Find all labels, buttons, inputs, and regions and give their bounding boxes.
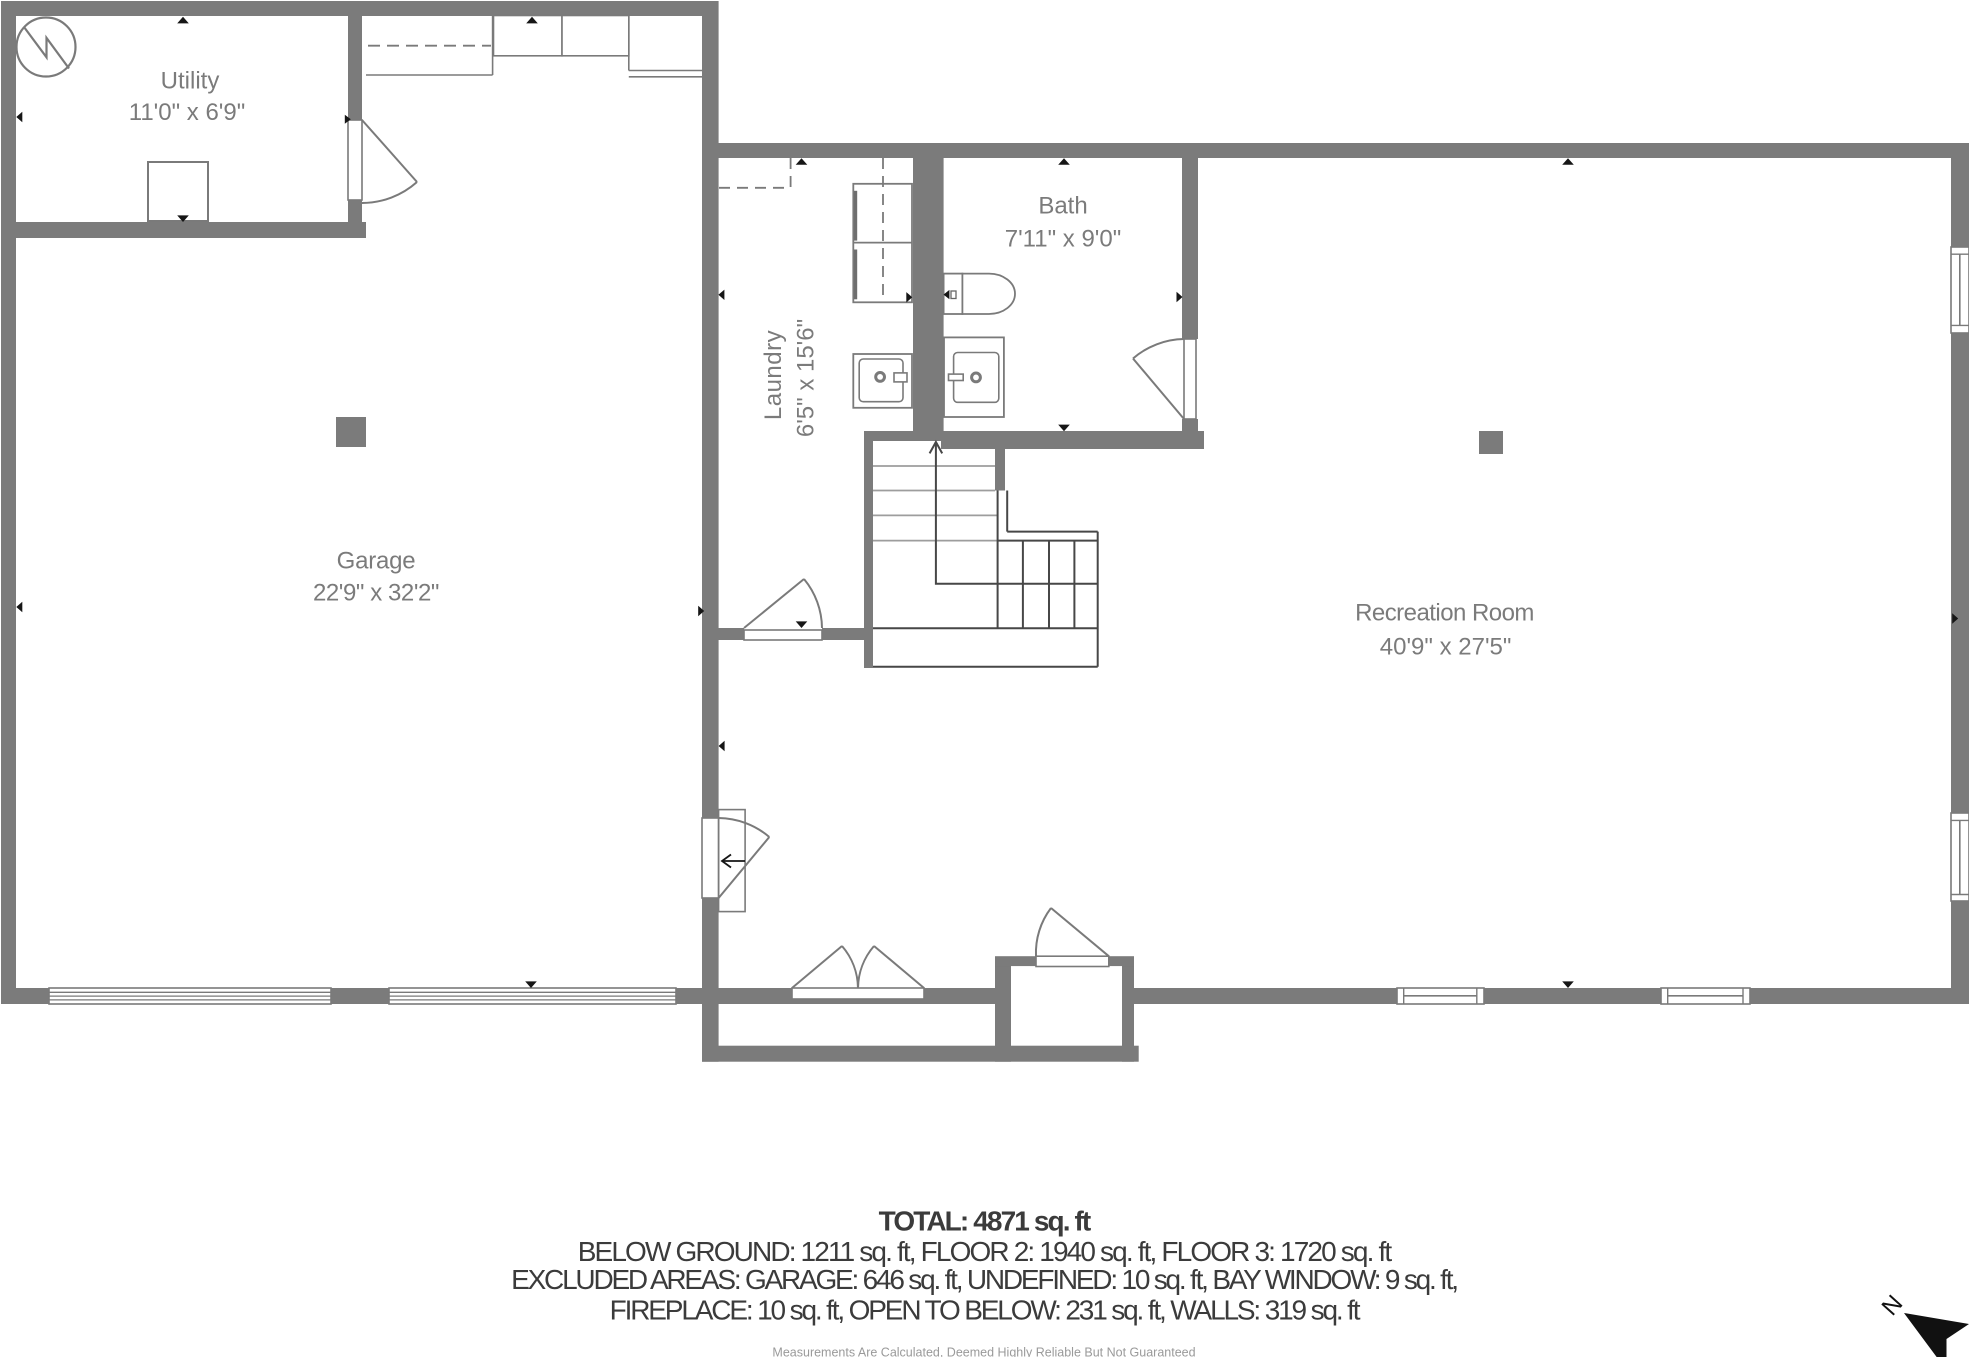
svg-text:Recreation Room: Recreation Room bbox=[1355, 599, 1534, 626]
svg-text:Garage: Garage bbox=[337, 548, 416, 575]
svg-text:Bath: Bath bbox=[1038, 193, 1087, 220]
svg-text:Utility: Utility bbox=[161, 68, 220, 95]
svg-text:40'9" x 27'5": 40'9" x 27'5" bbox=[1380, 634, 1512, 661]
svg-text:6'5" x 15'6": 6'5" x 15'6" bbox=[793, 319, 820, 437]
svg-text:7'11" x 9'0": 7'11" x 9'0" bbox=[1005, 226, 1122, 253]
svg-text:TOTAL: 4871 sq. ft: TOTAL: 4871 sq. ft bbox=[879, 1206, 1091, 1237]
svg-text:Measurements Are Calculated, D: Measurements Are Calculated, Deemed High… bbox=[772, 1346, 1195, 1357]
svg-text:FIREPLACE: 10 sq. ft, OPEN TO: FIREPLACE: 10 sq. ft, OPEN TO BELOW: 231… bbox=[610, 1295, 1361, 1326]
svg-text:EXCLUDED AREAS: GARAGE: 646 sq: EXCLUDED AREAS: GARAGE: 646 sq. ft, UNDE… bbox=[511, 1264, 1457, 1295]
svg-text:11'0" x 6'9": 11'0" x 6'9" bbox=[129, 99, 246, 126]
svg-text:22'9" x 32'2": 22'9" x 32'2" bbox=[313, 579, 439, 606]
svg-text:BELOW GROUND: 1211 sq. ft, FLO: BELOW GROUND: 1211 sq. ft, FLOOR 2: 1940… bbox=[578, 1236, 1393, 1267]
svg-text:Laundry: Laundry bbox=[760, 330, 787, 420]
